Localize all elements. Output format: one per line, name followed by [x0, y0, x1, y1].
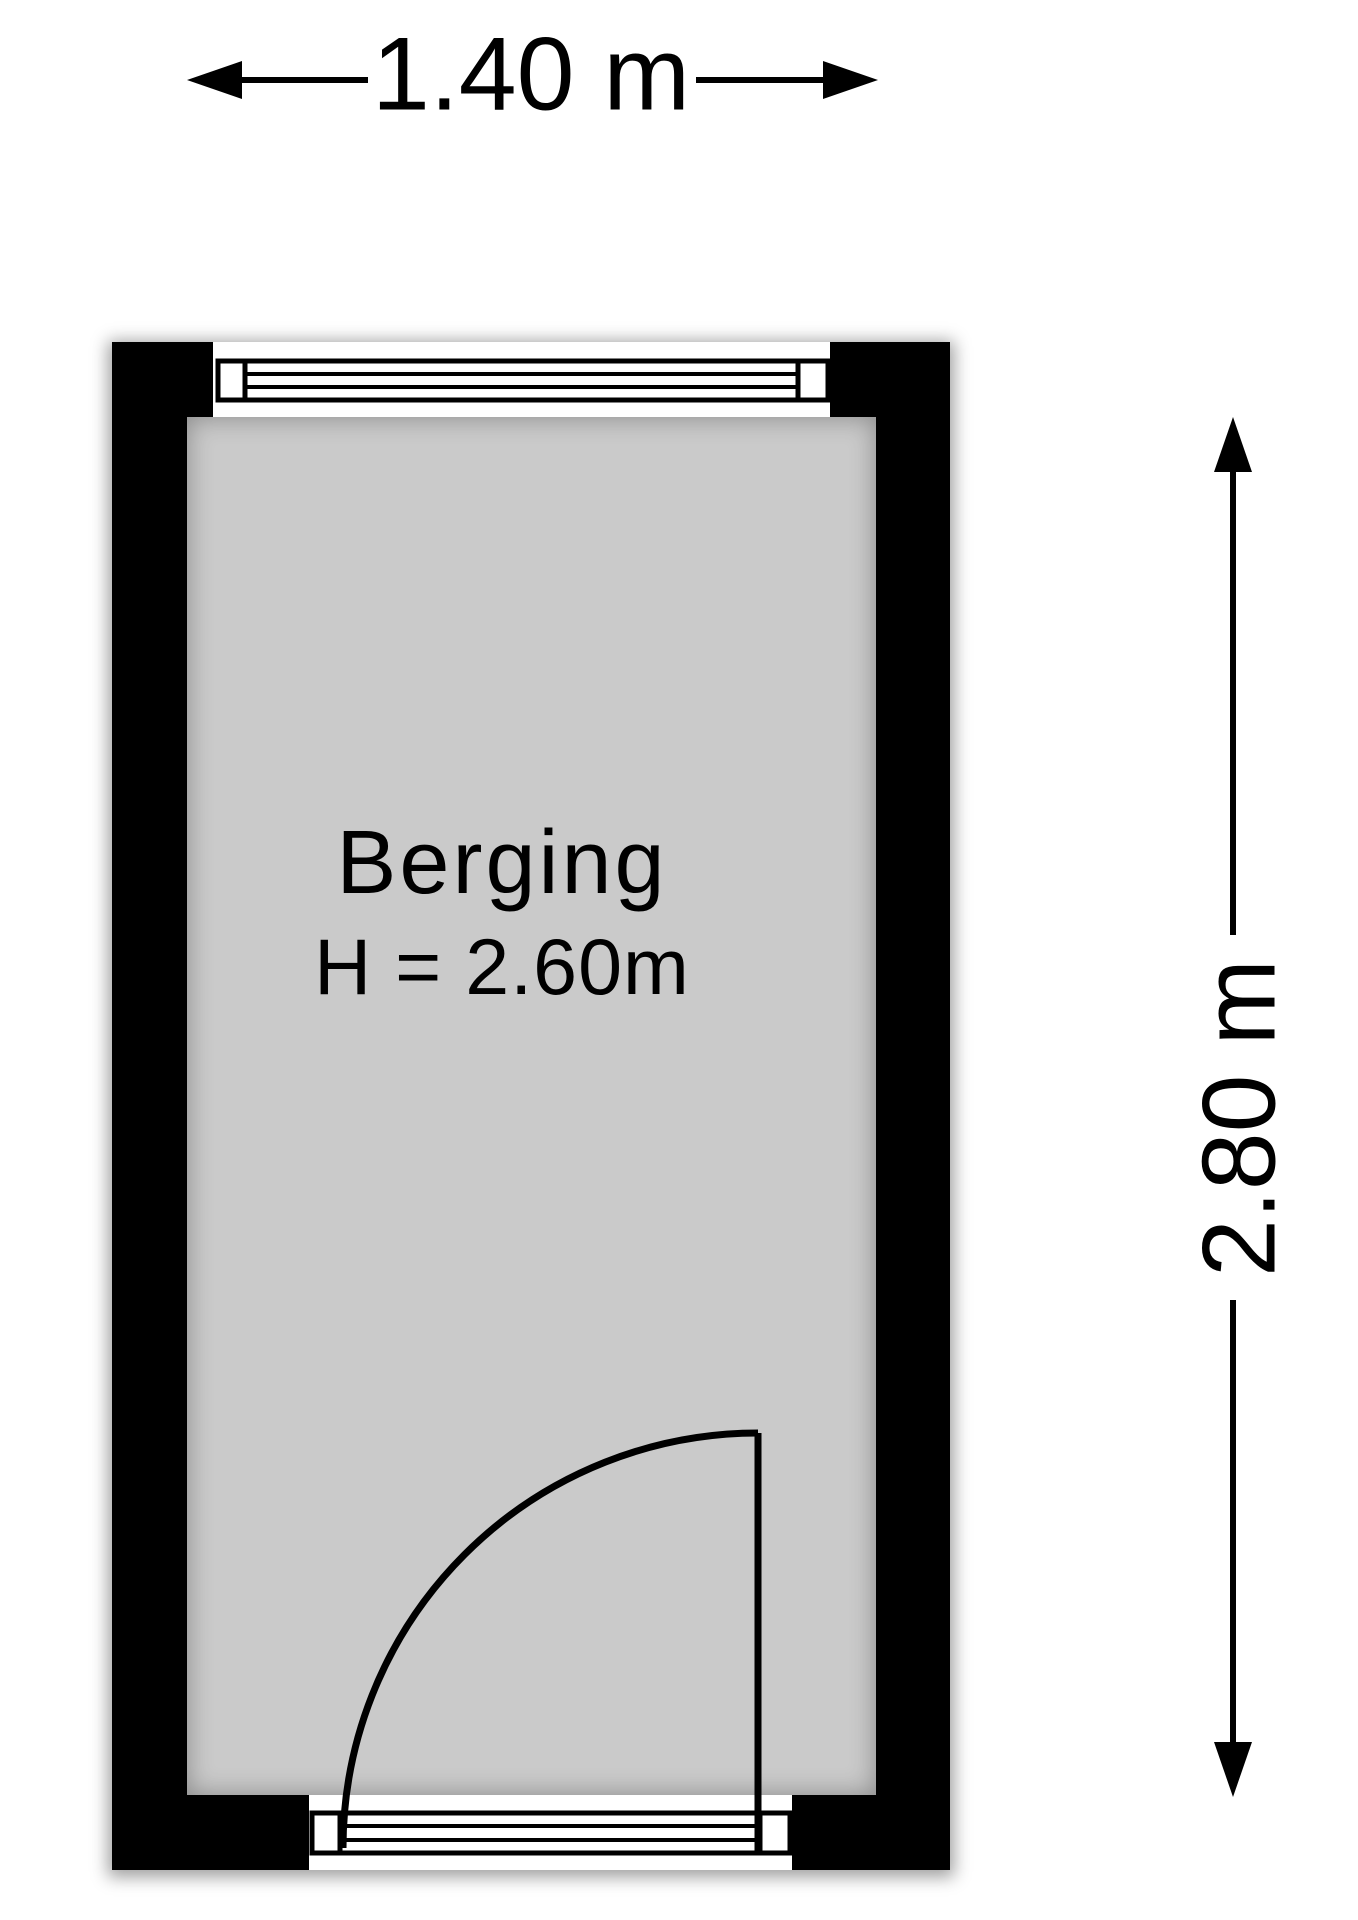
room-name: Berging: [314, 808, 690, 918]
height-dimension-label: 2.80 m: [1181, 959, 1300, 1277]
wall-bottom-left-corner: [112, 1795, 309, 1870]
floorplan-page: Berging H = 2.60m 1.40 m 2.80 m: [0, 0, 1358, 1920]
bottom-window-frame: [312, 1813, 790, 1853]
wall-right: [876, 342, 950, 1870]
width-dimension-label: 1.40 m: [372, 16, 690, 135]
door: [343, 1433, 758, 1853]
dimension-arrow-right-icon: [823, 61, 878, 99]
door-swing-arc-icon: [343, 1433, 758, 1848]
wall-bottom-right-corner: [792, 1795, 950, 1870]
room-ceiling-height: H = 2.60m: [314, 918, 690, 1016]
walls: [112, 342, 950, 1870]
dimension-arrow-left-icon: [187, 61, 242, 99]
top-window: [218, 361, 828, 400]
wall-top-left-corner: [112, 342, 213, 417]
room-label: Berging H = 2.60m: [314, 808, 690, 1016]
top-window-frame: [218, 361, 828, 400]
wall-top-right-corner: [830, 342, 950, 417]
dimension-arrow-up-icon: [1214, 417, 1252, 472]
dimension-arrow-down-icon: [1214, 1742, 1252, 1797]
wall-left: [112, 342, 187, 1870]
bottom-window: [312, 1813, 790, 1853]
